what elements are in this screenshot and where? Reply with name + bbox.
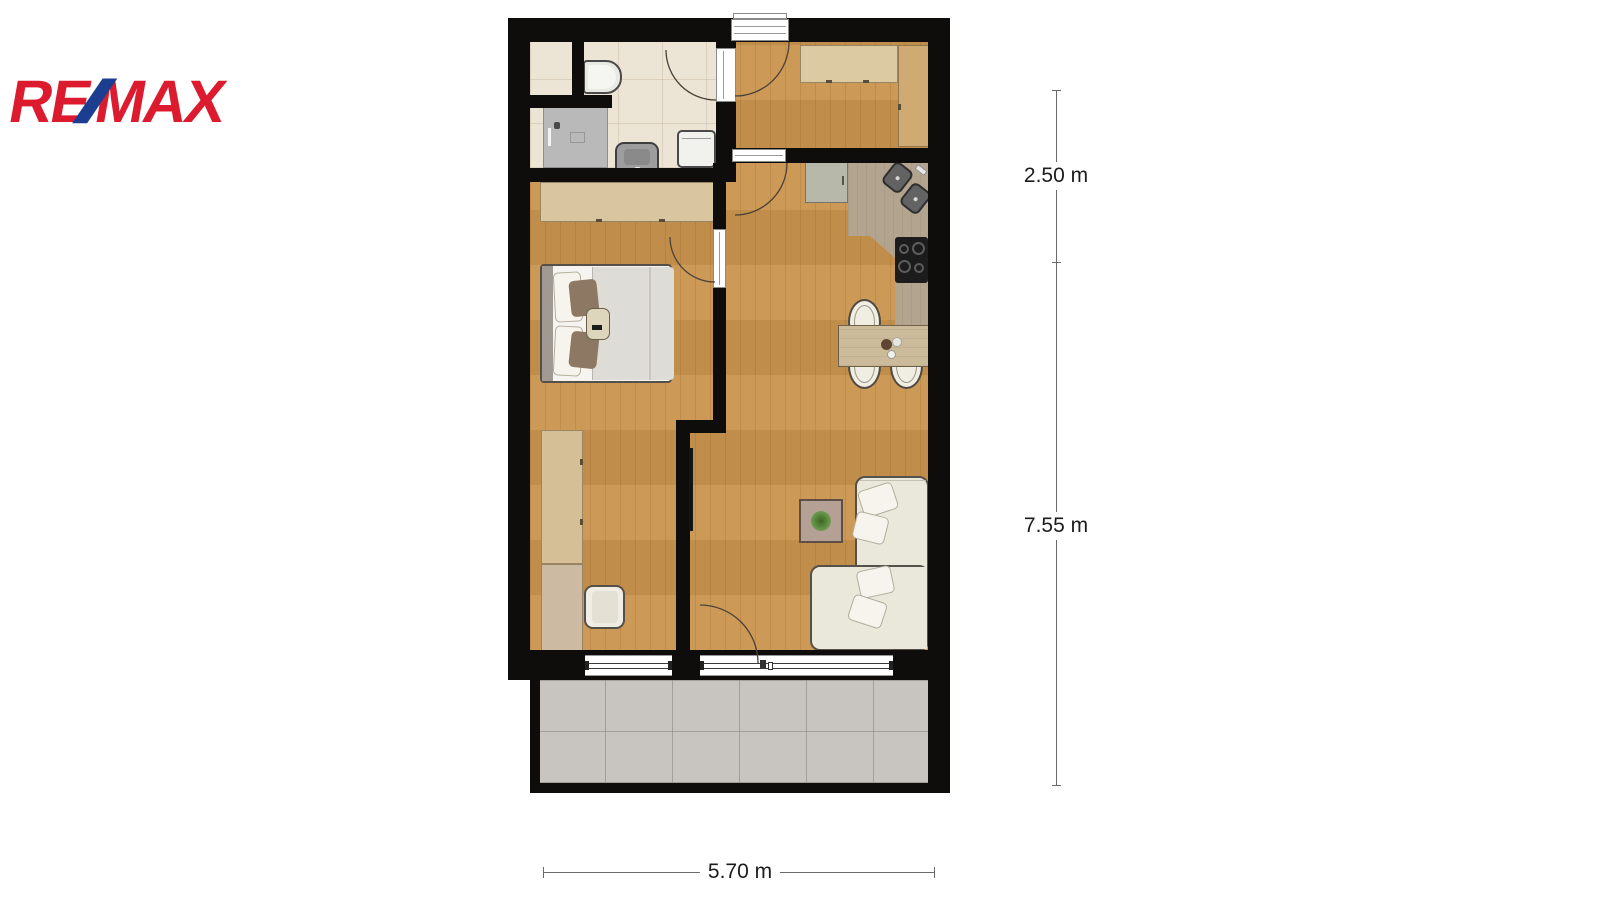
dimension-tick xyxy=(1052,90,1061,91)
dimension-tick xyxy=(1052,262,1061,263)
floor-plan xyxy=(508,18,950,793)
balcony-door-arc xyxy=(700,605,758,663)
remax-logo: RE/MAX xyxy=(5,72,229,132)
dimension-tick xyxy=(543,867,544,878)
dimension-label-755: 7.55 m xyxy=(1016,512,1096,540)
vertical-dimension-line xyxy=(1056,90,1057,785)
entrance-door-arc xyxy=(735,42,789,96)
dimension-tick xyxy=(934,867,935,878)
dimension-label-570: 5.70 m xyxy=(700,858,780,886)
floor-plan-page: RE/MAX xyxy=(0,0,1600,900)
dimension-tick xyxy=(1052,785,1061,786)
bedroom-door-arc xyxy=(670,237,715,282)
bathroom-door-arc xyxy=(666,50,716,100)
door-swing-arcs xyxy=(508,18,950,793)
dimension-label-250: 2.50 m xyxy=(1016,162,1096,190)
hall-door-arc xyxy=(735,163,787,215)
